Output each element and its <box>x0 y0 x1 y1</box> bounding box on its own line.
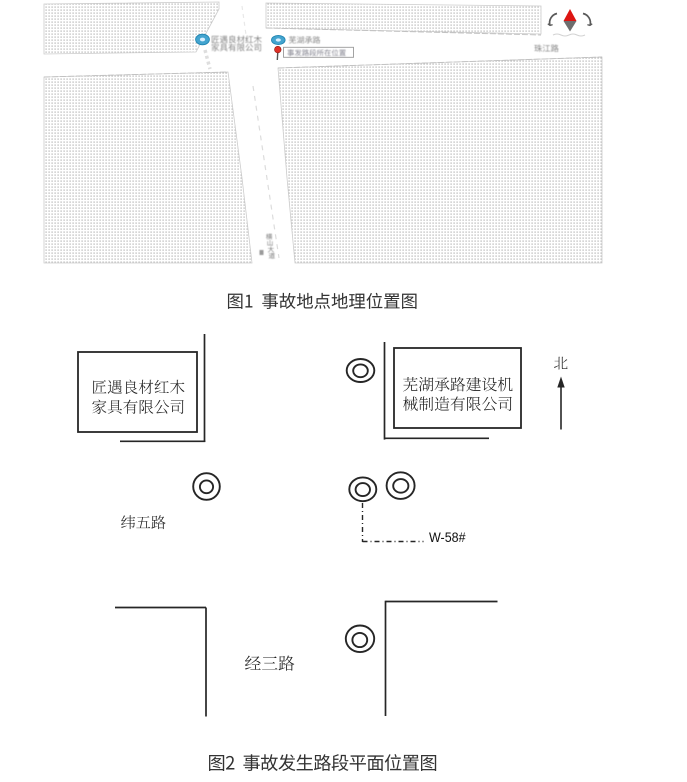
svg-text:W-58#: W-58# <box>429 529 466 545</box>
